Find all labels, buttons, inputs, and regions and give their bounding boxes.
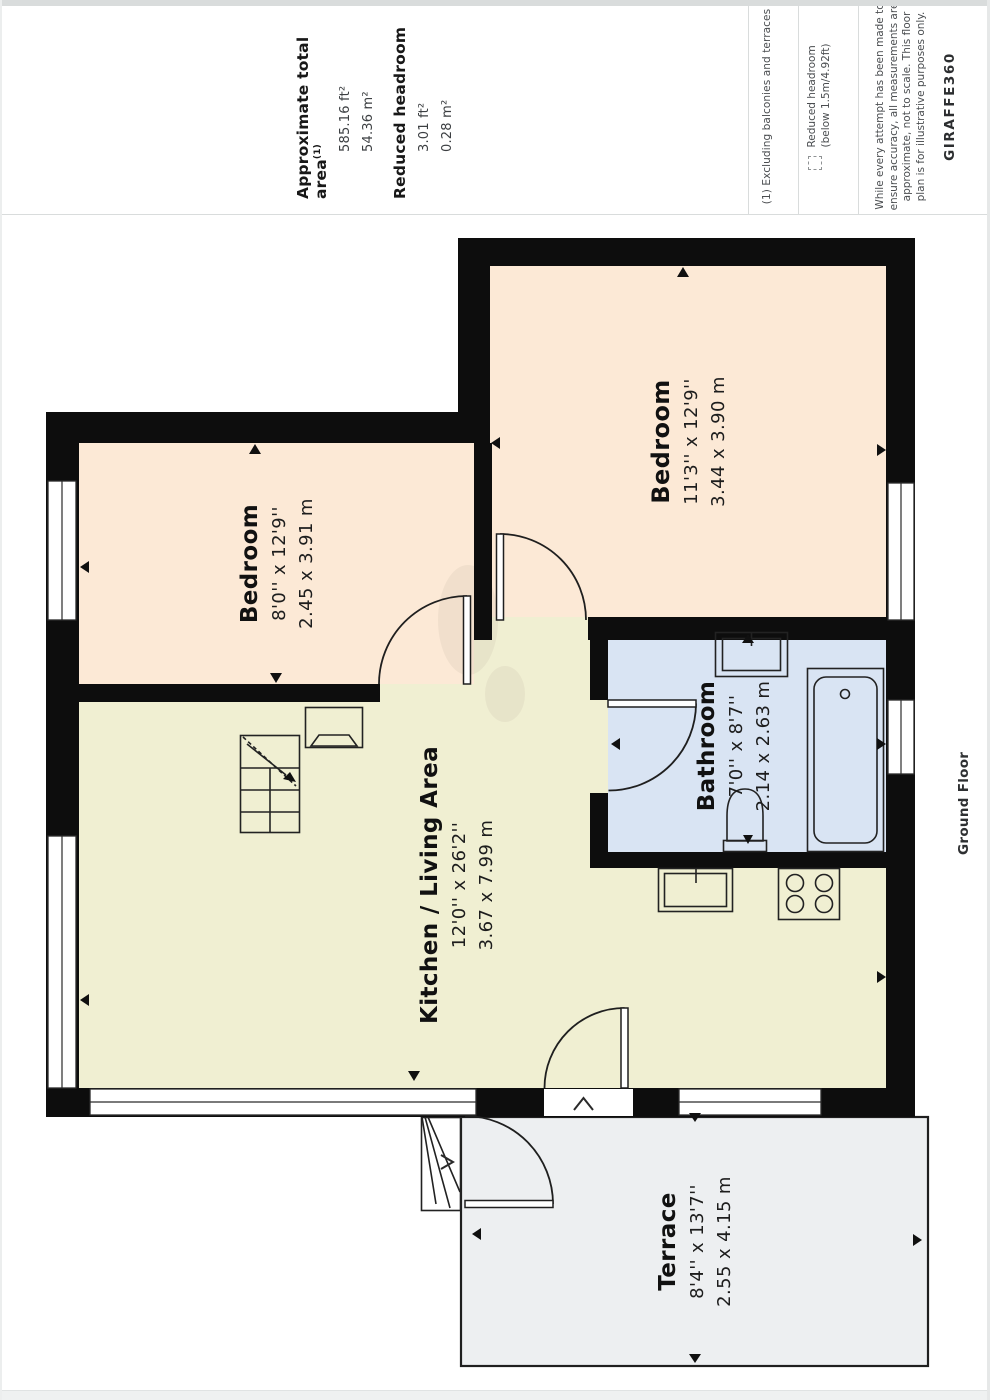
- page-edge-line: [0, 0, 2, 1400]
- bedroom-left-floor: [79, 443, 474, 684]
- total-area-m: 54.36 m²: [361, 0, 376, 152]
- total-area-block: Approximate total area(1) 585.16 ft² 54.…: [294, 0, 376, 199]
- terrace-floor: [461, 1117, 928, 1366]
- bedroom-doorway-floor: [492, 617, 588, 640]
- total-area-label: Approximate total area(1): [294, 0, 330, 199]
- dashed-square-icon: [808, 156, 822, 170]
- reduced-headroom-label: Reduced headroom: [391, 27, 409, 199]
- floor-title: Ground Floor: [956, 752, 972, 855]
- footnote-text: (1) Excluding balconies and terraces: [761, 0, 773, 214]
- exterior-steps-icon: [422, 1117, 461, 1211]
- divider: [798, 0, 799, 214]
- floorplan-page: Bedroom 8'0'' x 12'9'' 2.45 x 3.91 m Bed…: [0, 0, 990, 1400]
- brand-logo: GIRAFFE360: [942, 0, 958, 214]
- legend-line2: (below 1.5m/4.92ft): [820, 43, 832, 147]
- bathroom-doorway-floor: [590, 700, 608, 793]
- page-edge-strip: [0, 1390, 990, 1400]
- legend-line1: Reduced headroom: [806, 45, 818, 147]
- info-panel: Approximate total area(1) 585.16 ft² 54.…: [0, 0, 990, 215]
- reduced-headroom-legend: Reduced headroom (below 1.5m/4.92ft): [806, 0, 833, 214]
- bathroom-floor: [608, 640, 886, 852]
- floorplan-stage: Bedroom 8'0'' x 12'9'' 2.45 x 3.91 m Bed…: [0, 0, 990, 1400]
- entrance-opening: [544, 1089, 633, 1116]
- bedroom-right-floor: [490, 266, 886, 617]
- scan-artifact: [485, 666, 525, 722]
- footnote-mark: (1): [313, 144, 323, 159]
- total-area-ft: 585.16 ft²: [338, 0, 353, 152]
- kitchen-doorway-floor: [380, 684, 474, 702]
- divider: [858, 0, 859, 214]
- divider: [748, 0, 749, 214]
- page-edge-strip: [0, 0, 990, 6]
- reduced-headroom-m: 0.28 m²: [440, 27, 455, 152]
- reduced-headroom-block: Reduced headroom 3.01 ft² 0.28 m²: [391, 27, 455, 199]
- reduced-headroom-ft: 3.01 ft²: [417, 27, 432, 152]
- disclaimer-text: While every attempt has been made to ens…: [874, 0, 928, 214]
